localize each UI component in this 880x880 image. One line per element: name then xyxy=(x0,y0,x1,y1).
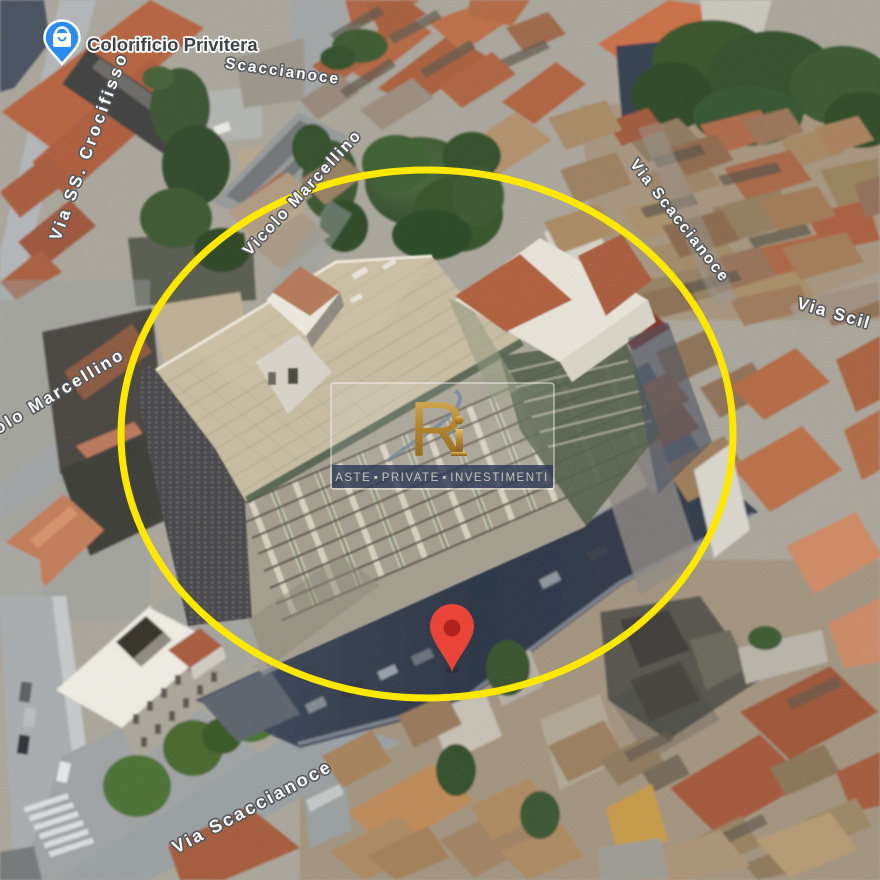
svg-text:Colorificio Privitera: Colorificio Privitera xyxy=(87,34,258,55)
svg-text:ASTE ▪ PRIVATE ▪ INVESTIMENTI: ASTE ▪ PRIVATE ▪ INVESTIMENTI xyxy=(335,472,549,484)
